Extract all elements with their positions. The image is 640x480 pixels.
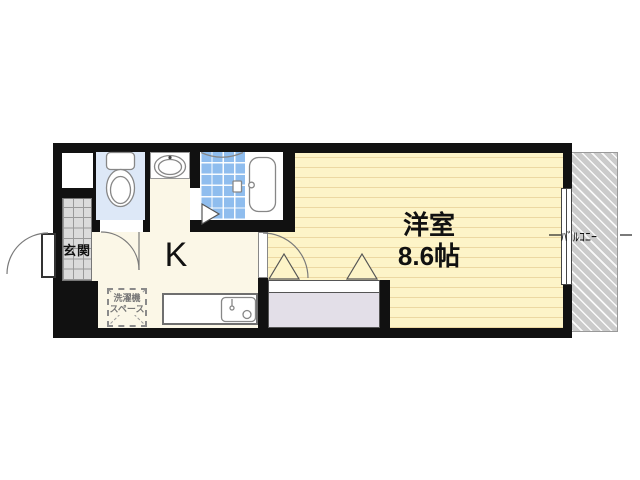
closet <box>268 293 380 328</box>
kitchen-room-door-opening <box>258 232 268 278</box>
balcony-label: ﾊﾞﾙｺﾆｰ <box>561 228 597 245</box>
kitchen-label: K <box>158 236 194 275</box>
entrance-side-wall <box>92 281 98 338</box>
kitchen-counter <box>162 293 258 325</box>
western-room-label: 洋室 8.6帖 <box>376 210 482 272</box>
washer-space-label: 洗濯機 スペース <box>105 293 149 315</box>
closet-door-track <box>268 280 380 293</box>
bathroom-door-opening <box>190 188 200 220</box>
balcony-label-text: ﾊﾞﾙｺﾆｰ <box>561 228 597 245</box>
closet-right-wall <box>380 280 390 328</box>
bathtub-area <box>245 152 283 220</box>
toilet-room <box>96 152 145 220</box>
entrance-label: 玄関 <box>58 240 96 259</box>
entrance-door-leaf <box>41 233 56 278</box>
bathroom-bottom-wall <box>190 220 295 232</box>
washer-space-label-line2: スペース <box>109 304 146 315</box>
bathroom-right-wall <box>283 143 295 232</box>
washer-space-label-line1: 洗濯機 <box>112 293 141 304</box>
western-room-name: 洋室 <box>376 210 482 241</box>
toilet-door-opening <box>100 220 143 232</box>
washbasin-counter <box>150 152 190 179</box>
western-room-size: 8.6帖 <box>376 241 482 272</box>
floorplan: 玄関 K 洋室 8.6帖 洗濯機 スペース ﾊﾞﾙｺﾆｰ <box>0 0 640 480</box>
bathroom-floor <box>200 152 245 220</box>
storage-nook <box>62 153 93 188</box>
